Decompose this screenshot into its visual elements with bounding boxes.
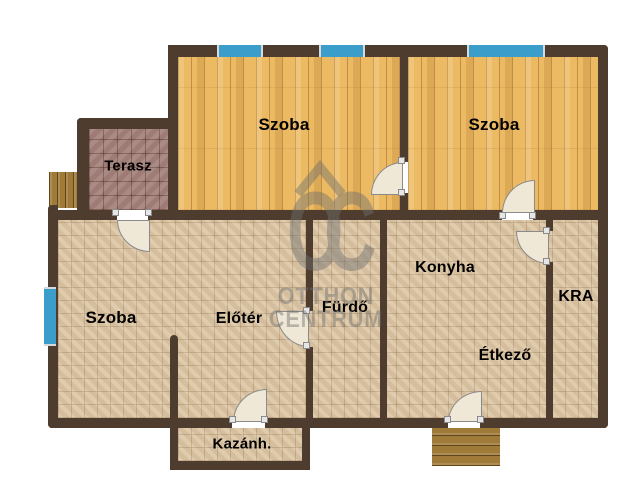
wall-terrace-left: [77, 118, 89, 210]
wall-bathroom-left-1: [306, 210, 313, 311]
wall-between-bedrooms-2: [400, 193, 408, 220]
wall-boiler-bottom: [170, 461, 310, 470]
window-icon-top-2: [319, 45, 365, 57]
terrace-steps: [49, 172, 80, 208]
window-icon-top-3: [467, 45, 545, 57]
wall-between-bedrooms-1: [400, 45, 408, 162]
wall-bathroom-right: [380, 210, 387, 428]
room-label-konyha: Konyha: [415, 259, 475, 277]
wall-bedrooms-left: [168, 45, 178, 220]
wall-top-3: [361, 45, 467, 57]
wall-right: [598, 45, 608, 428]
wall-top-2: [259, 45, 319, 57]
wall-mid-2: [148, 210, 502, 220]
room-label-kamra: KRA: [558, 288, 593, 306]
door-hinge-mark: [261, 416, 268, 423]
wall-stub-hall: [170, 335, 178, 428]
door-hinge-mark: [543, 258, 550, 265]
room-label-szoba-bottom: Szoba: [85, 308, 136, 328]
entrance-steps: [432, 428, 500, 466]
room-label-etkezo: Étkező: [479, 347, 532, 365]
wall-mid-3: [533, 210, 608, 220]
door-hinge-mark: [529, 212, 536, 219]
room-label-terasz: Terasz: [104, 158, 152, 175]
wall-bottom-3: [480, 418, 608, 428]
floor-plan: Szoba Szoba Terasz Szoba Előtér Fürdő Ko…: [0, 0, 641, 500]
door-hinge-mark: [303, 307, 310, 314]
door-hinge-mark: [477, 416, 484, 423]
door-hinge-mark: [444, 416, 451, 423]
window-icon-left: [44, 287, 56, 346]
door-hinge-mark: [499, 212, 506, 219]
door-hinge-mark: [229, 416, 236, 423]
door-hinge-mark: [398, 189, 405, 196]
door-hinge-mark: [112, 209, 119, 216]
room-label-eloter: Előtér: [216, 310, 263, 328]
door-hinge-mark: [398, 157, 405, 164]
wall-bathroom-left-2: [306, 347, 313, 428]
door-hinge-mark: [145, 209, 152, 216]
window-icon-top-1: [217, 45, 263, 57]
door-hinge-mark: [303, 342, 310, 349]
wall-bottom-1: [48, 418, 232, 428]
room-label-szoba-top-right: Szoba: [468, 115, 519, 135]
room-label-kazanhaz: Kazánh.: [213, 436, 272, 453]
room-label-furdo: Fürdő: [322, 299, 368, 317]
wall-pantry-2: [546, 262, 553, 428]
wall-terrace-top: [77, 118, 178, 129]
wall-bottom-2: [265, 418, 448, 428]
wall-mid-1: [48, 210, 117, 220]
door-hinge-mark: [543, 227, 550, 234]
room-label-szoba-top-left: Szoba: [258, 115, 309, 135]
